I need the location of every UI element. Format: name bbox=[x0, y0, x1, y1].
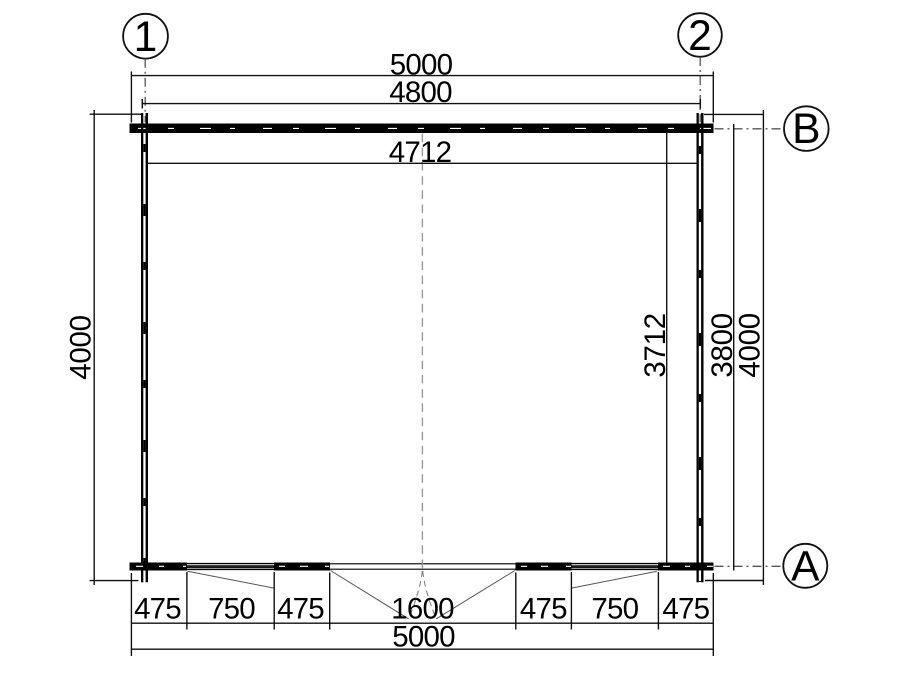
svg-text:4712: 4712 bbox=[389, 136, 451, 169]
svg-text:4000: 4000 bbox=[65, 315, 98, 379]
svg-text:B: B bbox=[792, 106, 820, 153]
svg-text:3712: 3712 bbox=[639, 313, 672, 377]
svg-text:1: 1 bbox=[134, 14, 158, 61]
svg-text:750: 750 bbox=[591, 593, 638, 626]
svg-text:2: 2 bbox=[688, 13, 712, 60]
svg-text:4000: 4000 bbox=[734, 313, 767, 377]
svg-text:475: 475 bbox=[277, 593, 324, 626]
svg-text:4800: 4800 bbox=[389, 76, 452, 109]
svg-text:750: 750 bbox=[208, 593, 255, 626]
svg-text:475: 475 bbox=[520, 593, 567, 626]
svg-text:475: 475 bbox=[134, 593, 181, 626]
svg-text:5000: 5000 bbox=[392, 621, 455, 654]
svg-text:475: 475 bbox=[662, 593, 709, 626]
svg-text:A: A bbox=[791, 543, 820, 590]
